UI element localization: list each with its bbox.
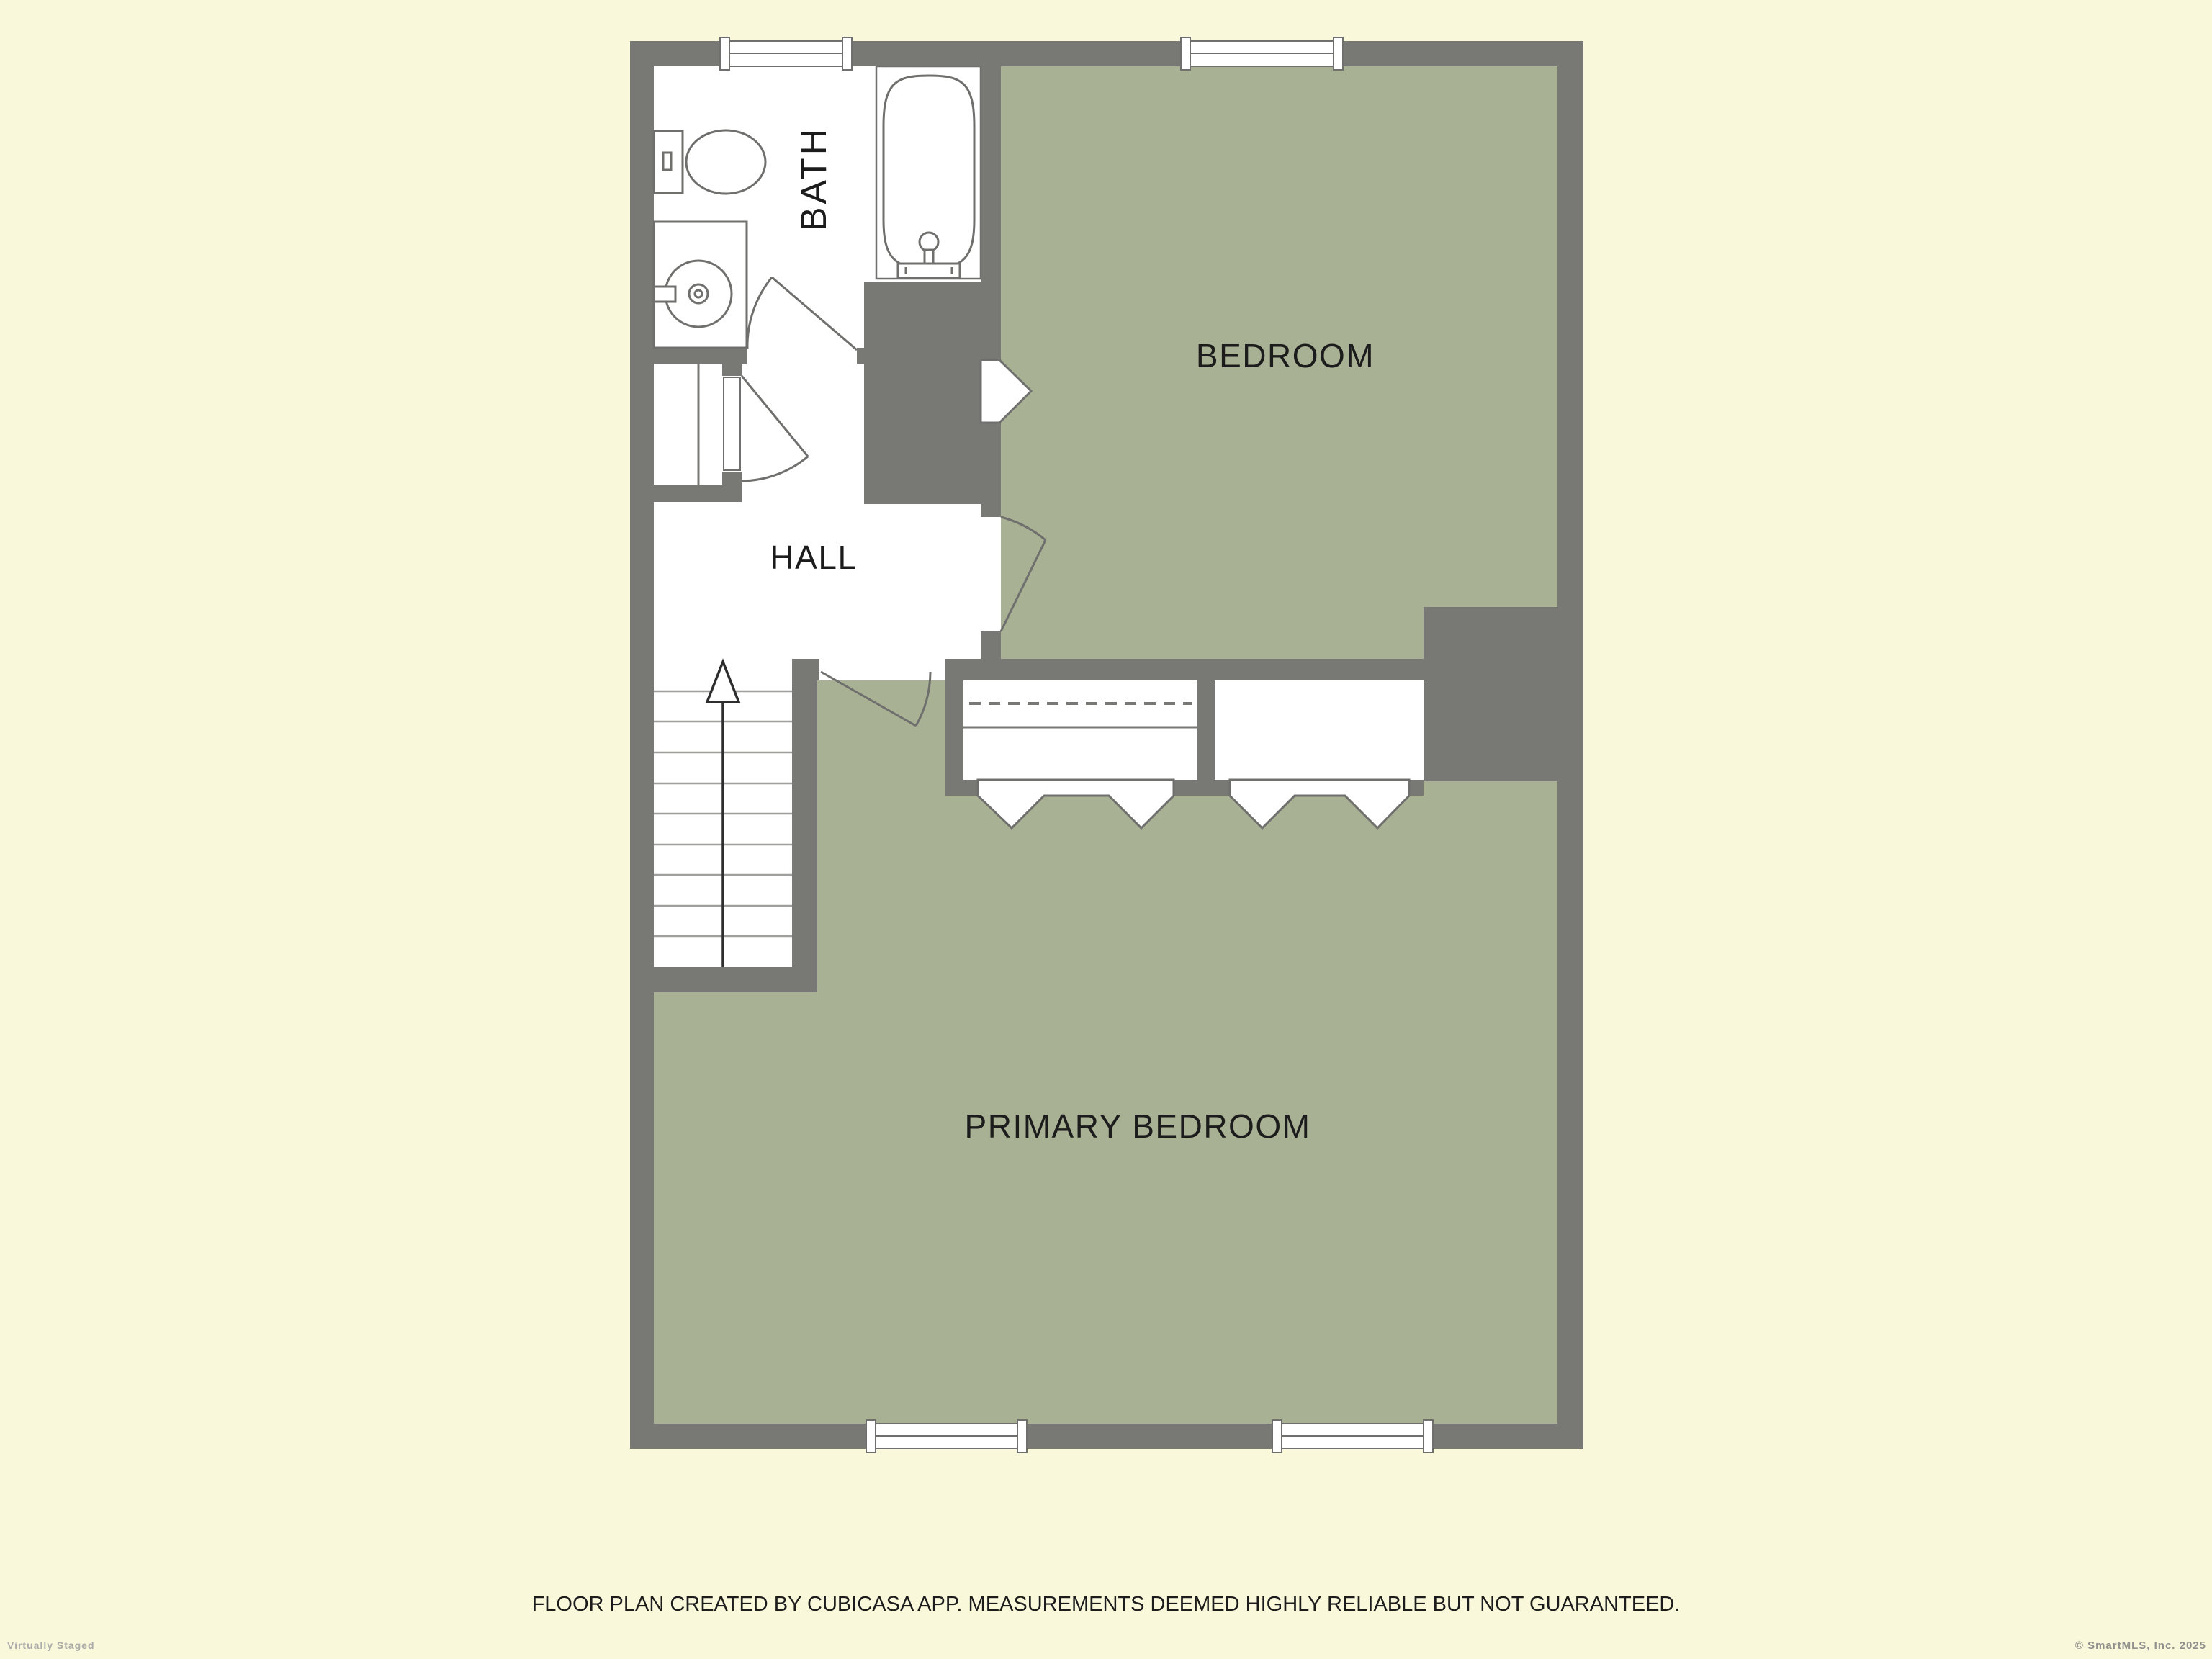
bedroom-door-opening: [981, 517, 1001, 631]
linen-closet-floor: [654, 364, 722, 485]
window-post: [1017, 1420, 1027, 1452]
toilet-bowl: [686, 130, 765, 194]
closet-left-wall: [945, 680, 963, 796]
hall-label: HALL: [770, 539, 857, 576]
toilet-flush-button: [663, 153, 671, 170]
stair-bottom-wall: [654, 967, 817, 992]
bath-label: BATH: [793, 126, 834, 231]
window-bath-top: [720, 37, 852, 70]
primary-door-opening: [819, 659, 945, 680]
window-primary-bottom-right: [1272, 1420, 1433, 1452]
primary-bedroom-label: PRIMARY BEDROOM: [965, 1107, 1311, 1145]
window-bedroom-top: [1181, 37, 1343, 70]
window-post: [1272, 1420, 1282, 1452]
stair-right-wall: [792, 659, 817, 992]
window-post: [842, 37, 852, 70]
closet-wall-stub: [1172, 780, 1197, 796]
sink-vanity-icon: [654, 222, 747, 348]
closet-divider-wall: [1197, 680, 1215, 796]
utility-block: [1424, 607, 1583, 781]
bath-door-opening: [747, 348, 857, 364]
footer-disclaimer: FLOOR PLAN CREATED BY CUBICASA APP. MEAS…: [0, 1593, 2212, 1617]
closet-left-floor: [963, 680, 1197, 780]
sink-faucet: [654, 287, 675, 302]
floor-plan-page: BATH BEDROOM HALL PRIMARY BEDROOM FLOOR …: [0, 0, 2212, 1659]
window-post: [1181, 37, 1190, 70]
window-post: [1424, 1420, 1433, 1452]
virtually-staged-watermark: Virtually Staged: [7, 1640, 95, 1651]
bedroom-label: BEDROOM: [1196, 337, 1375, 374]
linen-door-panel: [724, 377, 740, 470]
closet-right-floor: [1215, 680, 1424, 780]
window-post: [866, 1420, 876, 1452]
tub-faucet-bar: [898, 264, 960, 278]
window-primary-bottom-left: [866, 1420, 1027, 1452]
floor-plan-canvas: BATH BEDROOM HALL PRIMARY BEDROOM: [0, 0, 2212, 1659]
tub-shower-head: [920, 233, 938, 251]
window-post: [1334, 37, 1343, 70]
toilet-icon: [654, 130, 765, 194]
bathtub-icon: [876, 66, 981, 279]
smartmls-copyright: © SmartMLS, Inc. 2025: [2075, 1640, 2206, 1652]
window-post: [720, 37, 729, 70]
